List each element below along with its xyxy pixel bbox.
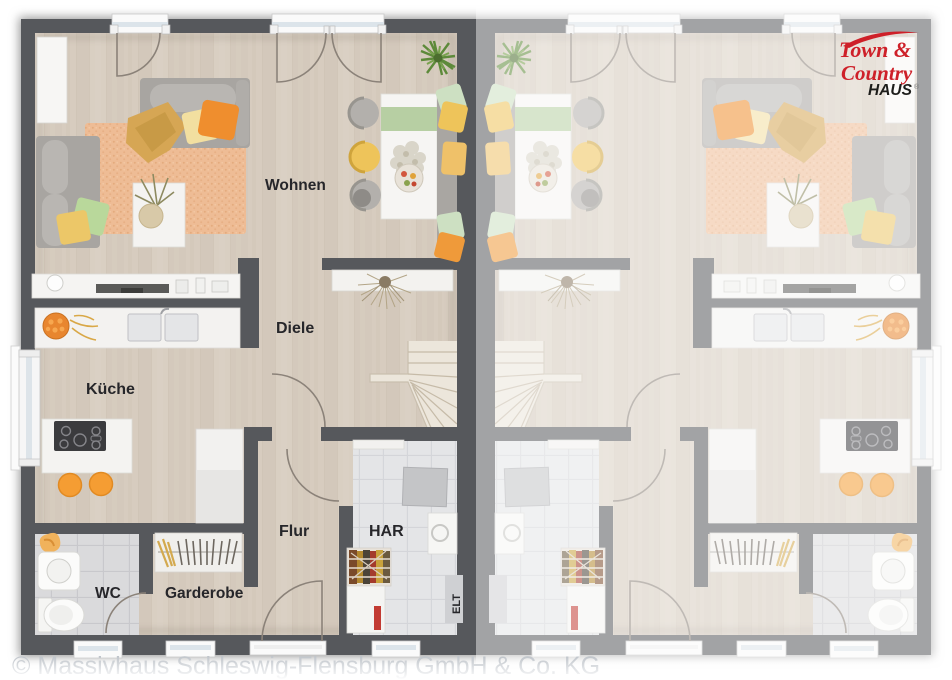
svg-text:Town &: Town & — [839, 37, 911, 62]
svg-text:Flur: Flur — [279, 523, 309, 540]
svg-text:HAR: HAR — [369, 523, 404, 540]
svg-text:Wohnen: Wohnen — [265, 177, 326, 194]
svg-text:WC: WC — [95, 585, 121, 602]
svg-text:Diele: Diele — [276, 320, 314, 337]
svg-text:Küche: Küche — [86, 381, 135, 398]
svg-text:®: ® — [914, 83, 920, 91]
svg-text:HAUS: HAUS — [868, 82, 913, 99]
svg-text:ELT: ELT — [451, 594, 463, 614]
svg-text:Garderobe: Garderobe — [165, 585, 244, 602]
